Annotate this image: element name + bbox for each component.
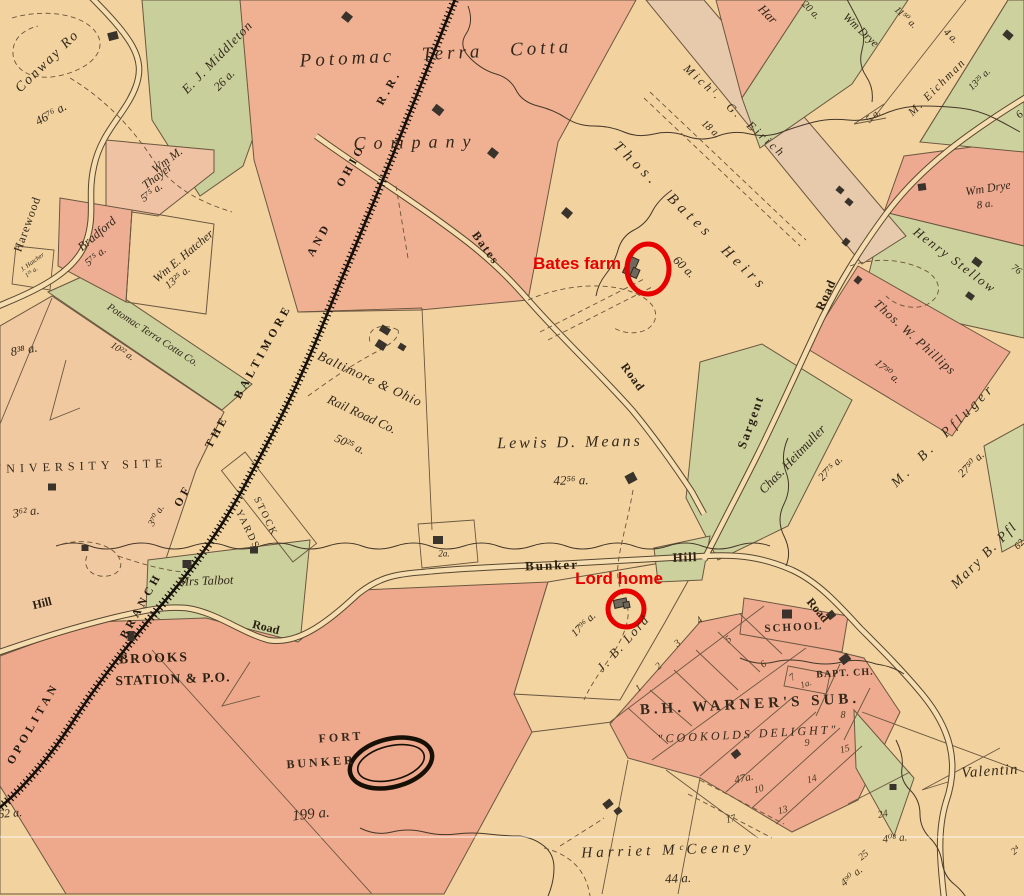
building-marker xyxy=(890,784,897,790)
building-marker xyxy=(183,560,192,568)
plate-crease xyxy=(0,836,1024,838)
place-label-brooks: BROOKS xyxy=(119,650,189,666)
school-building xyxy=(782,610,792,619)
lot-number-8: 8 xyxy=(841,711,846,721)
acreage-62: 62 a. xyxy=(0,806,22,820)
acreage-means: 42⁵⁶ a. xyxy=(553,473,588,487)
building-marker xyxy=(433,536,443,544)
acreage-2a: 2a. xyxy=(438,550,449,559)
lot-number-24: 24 xyxy=(877,809,889,821)
building-marker xyxy=(918,183,927,191)
parcel-label-means: Lewis D. Means xyxy=(497,434,643,453)
building-marker xyxy=(82,545,89,551)
building-marker xyxy=(48,484,56,491)
acreage-408: 4⁰⁸ a. xyxy=(882,832,908,845)
historic-plat-map: Conway Ro 46⁷⁶ a. E. J. Middleton 26 a. … xyxy=(0,0,1024,896)
annotation-lord-home: Lord home xyxy=(575,569,663,589)
parcel-label-potomac-company: Company xyxy=(353,132,478,152)
road-label-hill: Hill xyxy=(672,550,697,564)
place-label-fort: FORT xyxy=(318,729,364,744)
annotation-bates-farm: Bates farm xyxy=(533,254,621,274)
acreage-mcceeney: 44 a. xyxy=(665,871,692,885)
lot-number-9: 9 xyxy=(805,739,810,749)
parcel-label-talbot: Mrs Talbot xyxy=(178,574,233,588)
road-label-bunker: Bunker xyxy=(525,558,579,573)
